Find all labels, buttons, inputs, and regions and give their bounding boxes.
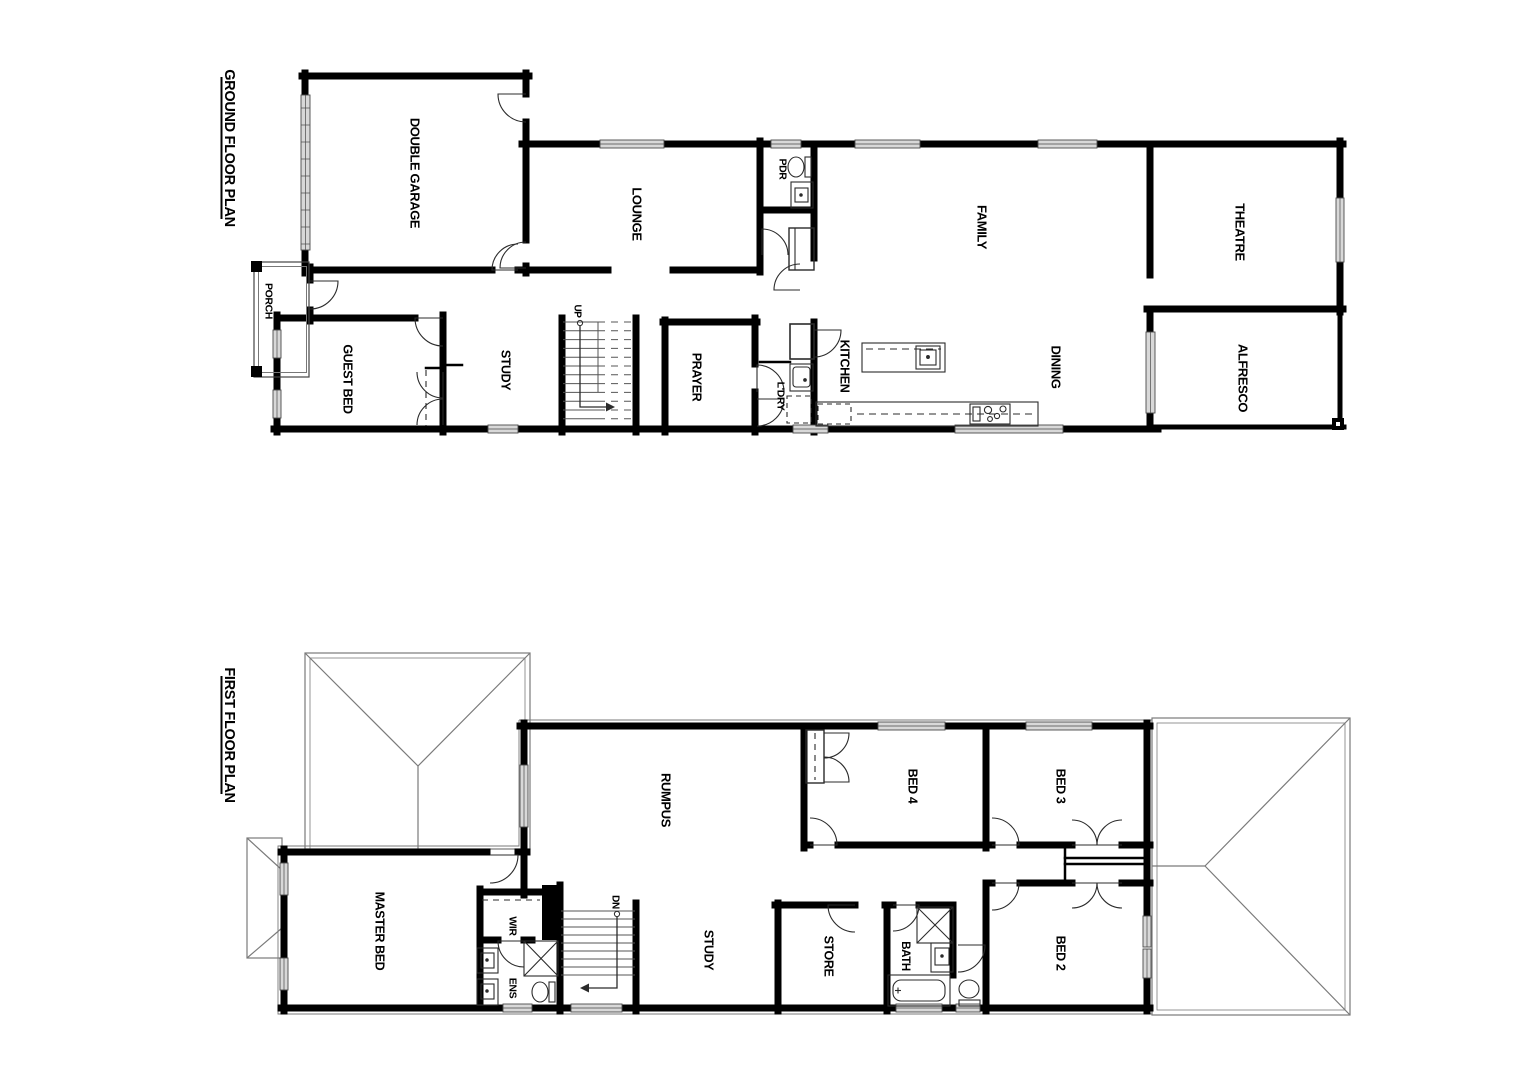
room-label-bed-4: BED 4	[906, 769, 920, 804]
pdr-toilet	[788, 157, 804, 177]
first-floor-plan: FIRST FLOOR PLAN	[221, 653, 1350, 1015]
room-label-porch: PORCH	[262, 283, 274, 319]
ens-shower	[524, 941, 558, 976]
room-label-laundry: L'DRY	[774, 382, 786, 411]
stair-down-arrow	[589, 917, 617, 988]
first-floor-secondary-walls	[1065, 845, 1147, 883]
broom-cabinet	[790, 324, 814, 359]
door-swing	[498, 94, 526, 122]
door-swing	[1097, 820, 1122, 845]
door-swing	[824, 733, 849, 758]
room-label-pdr: PDR	[776, 159, 788, 181]
room-labels: DOUBLE GARAGEPORCHGUEST BEDSTUDYPRAYERLO…	[262, 118, 1250, 999]
linen-closet	[789, 228, 814, 270]
first-floor-title: FIRST FLOOR PLAN	[221, 667, 237, 802]
door-swing	[417, 399, 443, 425]
room-label-lounge: LOUNGE	[629, 187, 644, 241]
pantry-shelves	[818, 404, 851, 424]
door-swing	[992, 883, 1019, 910]
ground-floor-title-text: GROUND FLOOR PLAN	[221, 69, 237, 227]
room-label-ens: ENS	[506, 978, 518, 999]
ground-floor-title: GROUND FLOOR PLAN	[221, 69, 237, 227]
room-label-theatre: THEATRE	[1232, 203, 1247, 261]
door-swing	[814, 330, 841, 357]
porch-post	[251, 366, 262, 377]
first-floor-stairs	[561, 911, 635, 993]
door-swing	[828, 905, 855, 932]
alfresco-post-center	[1336, 422, 1340, 426]
room-label-bed-2: BED 2	[1054, 936, 1068, 971]
garage-roof	[305, 653, 530, 849]
kitchen-island-bench	[862, 343, 945, 372]
stair-arrowhead	[580, 984, 589, 993]
bed4-robe	[806, 730, 824, 783]
door-swing	[417, 372, 443, 398]
porch-roof	[247, 838, 282, 958]
ground-floor-plan: GROUND FLOOR PLAN	[221, 69, 1344, 433]
roof-outlines	[247, 653, 1350, 1015]
stair-newel	[577, 320, 582, 325]
door-swing	[490, 855, 518, 883]
door-swing	[1097, 883, 1122, 908]
door-swing	[310, 281, 338, 309]
room-label-stair-direction: DN	[610, 895, 621, 909]
door-swing	[992, 818, 1019, 845]
bathtub	[888, 975, 950, 1006]
room-label-family: FAMILY	[974, 205, 989, 250]
room-label-prayer: PRAYER	[690, 353, 704, 402]
door-swing	[810, 818, 837, 845]
door-swing	[824, 757, 849, 782]
room-label-wir: WIR	[506, 916, 518, 936]
door-swing	[958, 945, 985, 972]
alfresco-roof	[1152, 718, 1350, 1015]
door-swing	[500, 242, 526, 268]
room-label-dining: DINING	[1048, 345, 1063, 388]
ground-floor-stairs	[563, 320, 634, 418]
first-floor-title-text: FIRST FLOOR PLAN	[221, 667, 237, 802]
room-label-study: STUDY	[702, 930, 716, 971]
room-label-kitchen: KITCHEN	[838, 340, 852, 393]
door-swing	[1072, 883, 1097, 908]
room-label-stair-direction: UP	[572, 304, 583, 318]
room-label-store: STORE	[822, 936, 836, 977]
room-label-alfresco: ALFRESCO	[1235, 344, 1250, 413]
door-swing	[762, 229, 788, 255]
bath-shower	[917, 907, 953, 943]
room-label-rumpus: RUMPUS	[658, 773, 673, 828]
ens-toilet	[532, 982, 548, 1002]
room-label-bed-3: BED 3	[1054, 769, 1068, 804]
laundry-fixtures	[787, 324, 814, 423]
door-swing	[415, 318, 443, 346]
door-swing	[498, 941, 524, 967]
wall-block	[542, 885, 560, 940]
wc-toilet	[959, 980, 979, 998]
room-label-bath: BATH	[899, 941, 911, 971]
washing-machine-space	[787, 396, 811, 423]
ground-floor-walls	[274, 73, 1343, 432]
door-swing	[774, 264, 800, 290]
ground-floor-fixtures	[426, 157, 1038, 426]
door-swing	[492, 244, 518, 270]
porch-post	[251, 261, 262, 272]
floor-plan-sheet: GROUND FLOOR PLAN	[0, 0, 1536, 1087]
kitchen-bench	[816, 402, 1038, 426]
room-label-study: STUDY	[499, 350, 513, 391]
room-label-master-bed: MASTER BED	[373, 892, 387, 971]
room-label-guest-bed: GUEST BED	[341, 344, 355, 414]
room-label-double-garage: DOUBLE GARAGE	[407, 118, 422, 229]
door-swing	[893, 905, 919, 931]
door-swing	[1072, 820, 1097, 845]
stair-newel	[614, 911, 619, 916]
